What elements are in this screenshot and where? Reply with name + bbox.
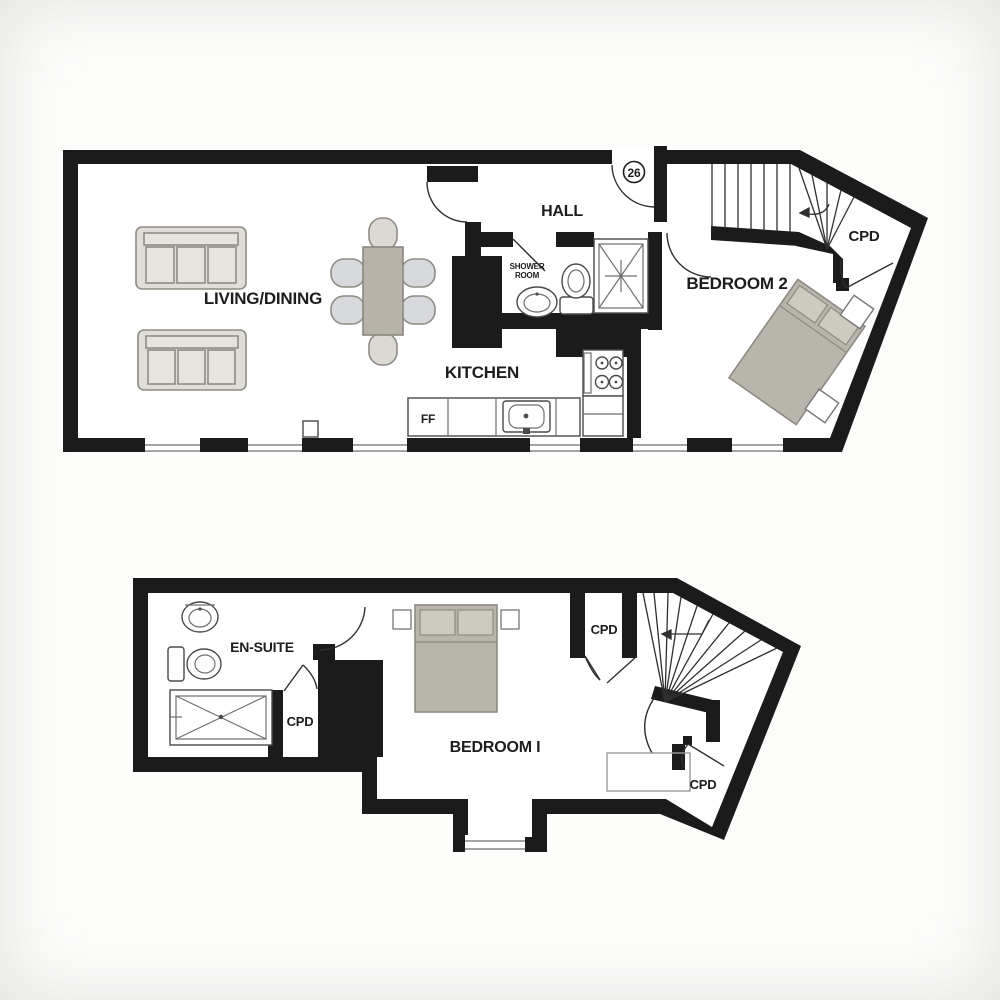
cpd-bottom-label: CPD — [690, 777, 717, 792]
toilet — [560, 264, 593, 314]
dining-table — [363, 247, 403, 335]
cpd-upper-label: CPD — [848, 228, 879, 245]
shower-enclosure — [170, 690, 272, 745]
kitchen-label: KITCHEN — [445, 363, 519, 382]
window — [248, 437, 302, 453]
lower-wall-block — [318, 660, 383, 757]
kitchen-sink — [503, 401, 550, 434]
entrance-partition-wall — [654, 146, 667, 222]
dormer-window — [465, 835, 525, 854]
cpd-left-label: CPD — [287, 714, 314, 729]
upper-floor-plan: 26 — [63, 146, 928, 453]
bedside-table — [393, 610, 411, 629]
living-dining-label: LIVING/DINING — [204, 289, 322, 308]
floorplan-svg: 26 — [0, 0, 1000, 1000]
window — [732, 437, 783, 453]
shower-room-label-2: ROOM — [515, 271, 540, 280]
window — [145, 437, 200, 453]
floorplan-page: 26 — [0, 0, 1000, 1000]
window — [530, 437, 580, 453]
basin — [182, 602, 218, 632]
bedroom2-label: BEDROOM 2 — [686, 274, 787, 293]
sofa-top — [136, 227, 246, 289]
basin — [517, 287, 557, 317]
window — [353, 437, 407, 453]
unit-number-label: 26 — [628, 166, 641, 180]
shower-enclosure — [594, 239, 648, 313]
chimney-block — [452, 256, 502, 348]
radiator — [303, 421, 318, 437]
shower-room-label-1: SHOWER — [510, 262, 545, 271]
bedside-table — [501, 610, 519, 629]
kitchen-counter-right — [583, 396, 623, 436]
toilet — [168, 647, 221, 681]
sofa-bottom — [138, 330, 246, 390]
lower-floor-plan: EN-SUITE BEDROOM I CPD CPD CPD — [133, 578, 801, 854]
hob — [583, 350, 623, 396]
hall-label: HALL — [541, 203, 583, 220]
fridge-freezer-label: FF — [421, 412, 435, 426]
cpd-top-label: CPD — [591, 622, 618, 637]
ensuite-label: EN-SUITE — [230, 639, 294, 655]
window — [633, 437, 687, 453]
bedroom1-label: BEDROOM I — [450, 739, 541, 756]
